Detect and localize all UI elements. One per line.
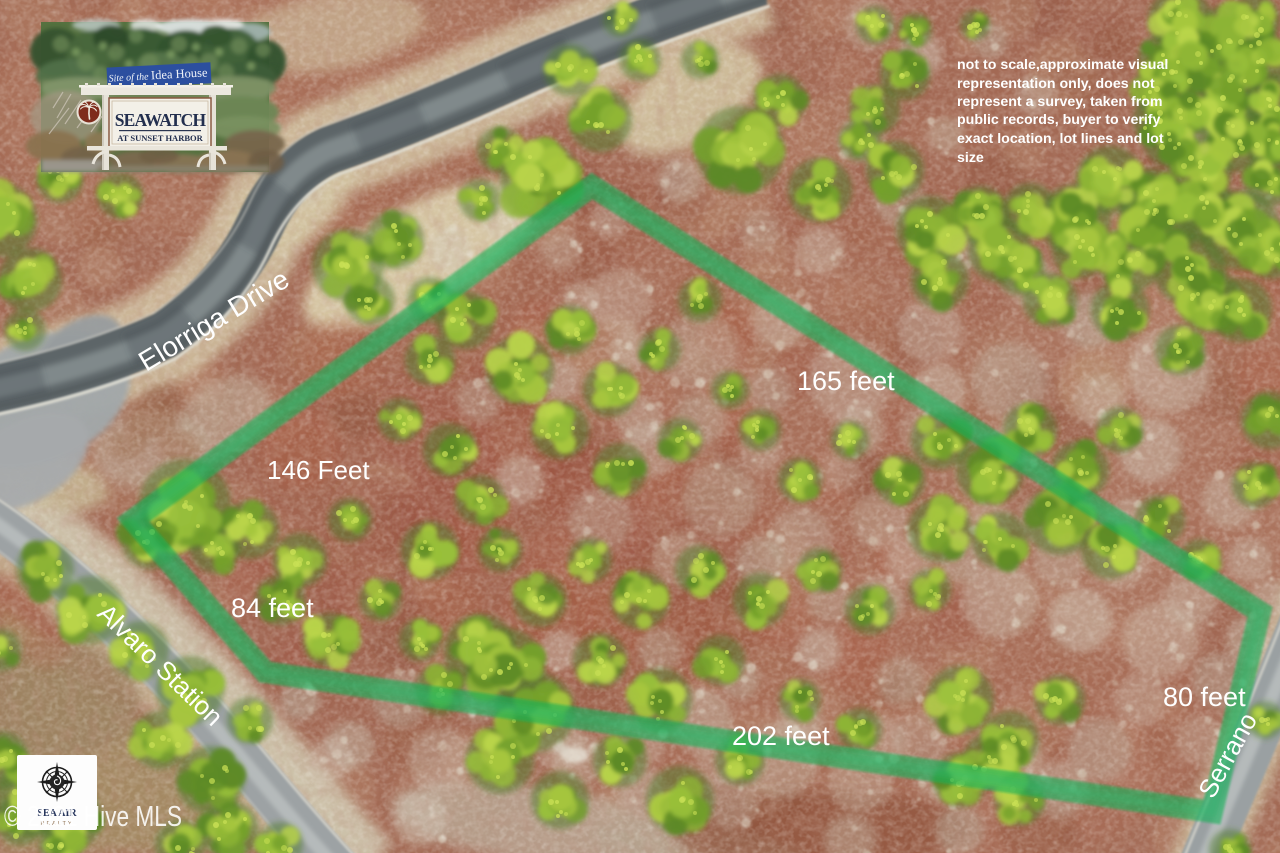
svg-text:AT SUNSET HARBOR: AT SUNSET HARBOR [117,133,203,143]
svg-text:represent a survey, taken from: represent a survey, taken from [957,94,1163,110]
svg-text:80 feet: 80 feet [1163,682,1246,712]
svg-text:84 feet: 84 feet [231,593,314,623]
svg-text:146 Feet: 146 Feet [267,455,370,485]
svg-text:not to scale,approximate visua: not to scale,approximate visual [957,57,1168,73]
svg-text:size: size [957,150,984,166]
svg-text:SEAWATCH: SEAWATCH [115,110,207,130]
svg-text:© 2021 Hive MLS: © 2021 Hive MLS [4,801,182,833]
svg-text:202 feet: 202 feet [732,721,830,751]
svg-text:public records, buyer to verif: public records, buyer to verify [957,112,1161,128]
svg-text:representation only, does not: representation only, does not [957,76,1155,92]
svg-text:165 feet: 165 feet [797,366,895,396]
svg-text:exact location, lot lines and: exact location, lot lines and lot [957,131,1164,147]
